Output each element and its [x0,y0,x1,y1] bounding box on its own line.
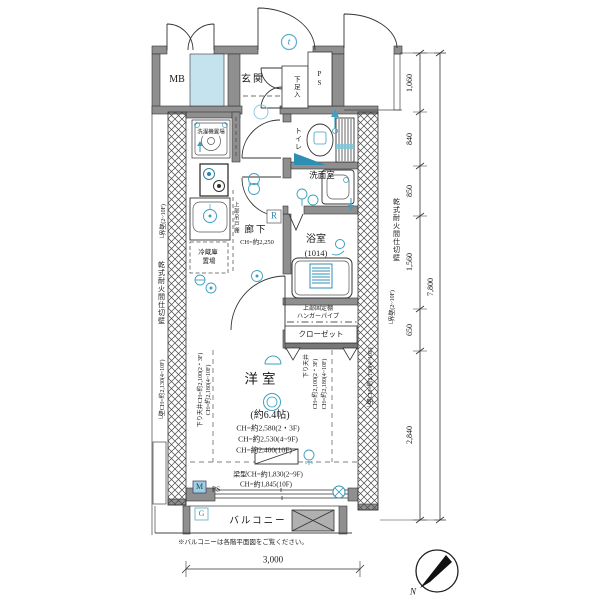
r-symbol: R [271,212,277,221]
wall-right-boundary-label: └界壁(2~10F) [390,290,396,326]
ch-10f-label: CH=約2,400(10F) [236,446,292,454]
dim-total-7800: 7,800 [427,278,435,296]
hall-door [242,120,281,158]
down-ceiling-left2-label: CH=約2,180(4~10F) [206,365,212,416]
dim-850: 850 [406,185,414,197]
wall-left-ch-label: └壁CH=約2,130(4~10F) [160,359,166,420]
hanger-pipe-label: ハンガーパイプ [297,314,339,320]
wall-left-dry-partition-label: 乾式耐火間仕切壁 [158,261,165,325]
washroom-label: 洗面室 [309,171,335,180]
toilet-fixture [294,109,354,165]
bath-label: 浴室 [306,235,326,245]
western-room-label: 洋室 [245,372,280,386]
entrance-door [258,8,315,50]
dim-2840: 2,840 [406,426,414,444]
toilet-label: トイレ [295,127,302,151]
fridge-label-2: 置場 [203,259,216,266]
neighbor-door [344,14,397,48]
mb-door-left [167,24,193,50]
outlet-symbols-kitchen [195,275,216,293]
ps-bottom-label: PS [212,485,220,493]
mb-shaft [190,54,224,106]
ch-23f-label: CH=約2,580(2・3F) [236,424,299,432]
floorplan-graphics [0,0,600,600]
shoe-door-bottom [261,87,282,108]
corridor-label: 廊下 [244,226,267,236]
mb-door-right [188,24,214,50]
closet-area [285,322,357,360]
beam2-label: CH=約1,845(10F) [240,482,292,489]
room-door [231,276,285,330]
upper-cabinet-label: 上部吊戸棚 [232,202,238,235]
stove [200,164,228,196]
closet-label: クローゼット [299,330,344,338]
north-label: N [410,588,416,597]
dim-1060: 1,060 [406,74,414,92]
kitchen-sink [190,198,230,240]
beam1-label: 梁型CH=約1,830(2~9F) [233,472,303,479]
shoe-box-label: 下足入 [292,76,299,99]
fridge-label-1: 冷蔵庫 [198,250,218,257]
shower-symbol [336,240,345,249]
m-symbol: M [196,483,203,491]
down-ceiling-left-label: 下り天井CH=約2,100(2・3F) [198,353,204,428]
compass-icon [416,550,458,592]
genkan-label: 玄関 [241,75,265,85]
dim-840: 840 [406,133,414,145]
wall-light-symbol [265,356,281,364]
dim-650: 650 [406,324,414,336]
down-ceiling-right1-label: CH=約2,100(2・3F) [313,359,319,410]
wall-right-ch-label: └壁CH=約2,130(4~10F) [368,347,374,408]
dim-1560: 1,560 [406,253,414,271]
right-dimension-lines [380,50,446,523]
ps-top-label: PS [316,70,323,88]
wall-right-dry-partition-label: 乾式耐火間仕切壁 [393,198,400,262]
down-ceiling-right2-label: CH=約2,180(4~10F) [322,359,328,410]
down-ceiling-right-label: 下り天井 [304,354,310,378]
wall-left-boundary-label: └界壁(2~10F) [161,204,167,240]
balcony-note: ※バルコニーは各階平面図をご覧ください。 [178,540,308,547]
t-symbol: t [288,38,291,47]
balcony-window [215,488,348,500]
bath-size-label: (1014) [305,249,328,258]
washing-machine [192,120,230,158]
corridor-ch-label: CH=約2,250 [240,240,274,247]
g-symbol: G [199,510,205,518]
ceiling-light-symbol [264,394,281,411]
upper-shelf-label: 上部固定棚 [303,306,333,312]
mb-label: MB [169,75,185,85]
floorplan-page: MB 玄関 下足入 PS t 洗濯機置場 トイレ 洗面室 廊下 CH=約2,25… [0,0,600,600]
dim-3000: 3,000 [263,556,283,565]
western-size-label: (約6.4帖) [250,411,289,421]
laundry-label: 洗濯機置場 [196,130,226,136]
balcony-label: バルコニー [229,517,286,527]
ch-49f-label: CH=約2,530(4~9F) [238,435,298,443]
